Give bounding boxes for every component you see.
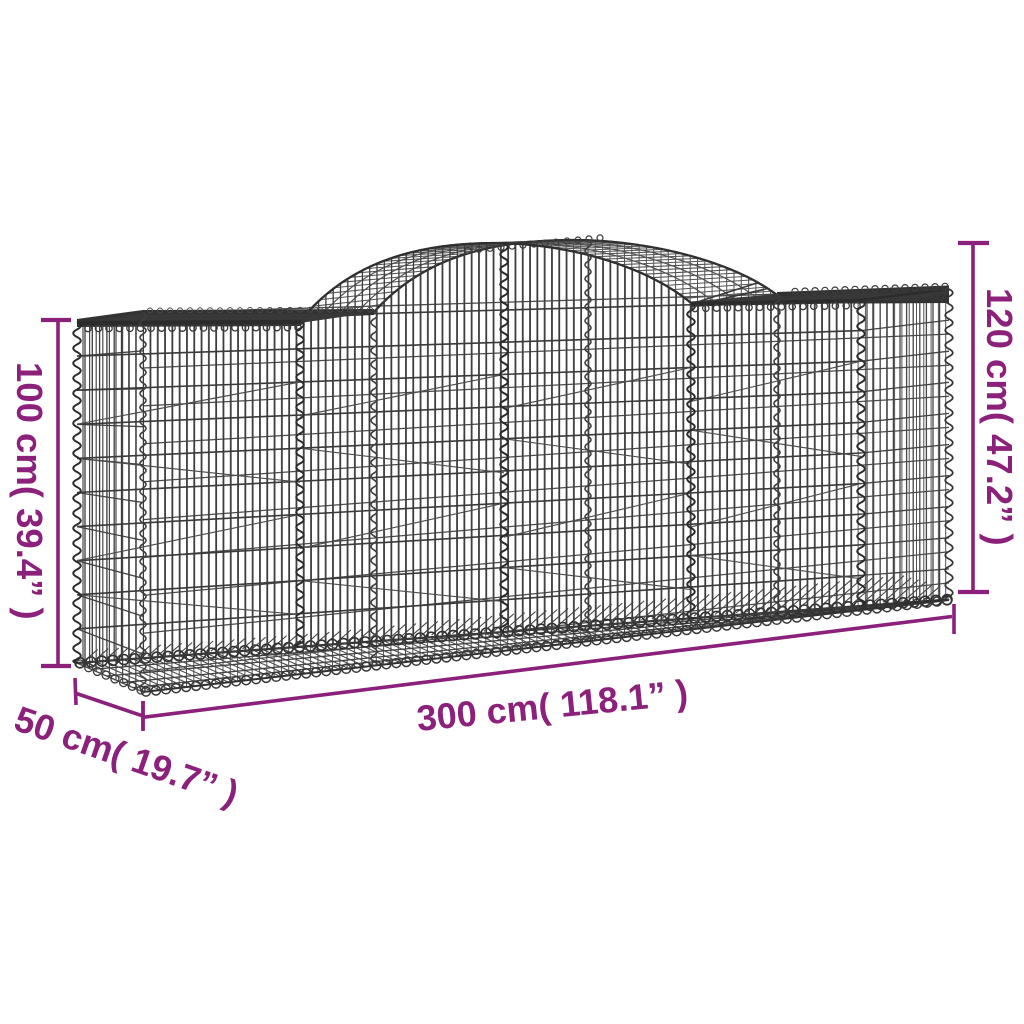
svg-text:300 cm( 118.1” ): 300 cm( 118.1” ) — [415, 672, 690, 739]
svg-text:120 cm( 47.2” ): 120 cm( 47.2” ) — [979, 288, 1020, 546]
svg-text:50 cm( 19.7” ): 50 cm( 19.7” ) — [9, 698, 244, 814]
svg-text:100 cm( 39.4” ): 100 cm( 39.4” ) — [9, 362, 50, 620]
